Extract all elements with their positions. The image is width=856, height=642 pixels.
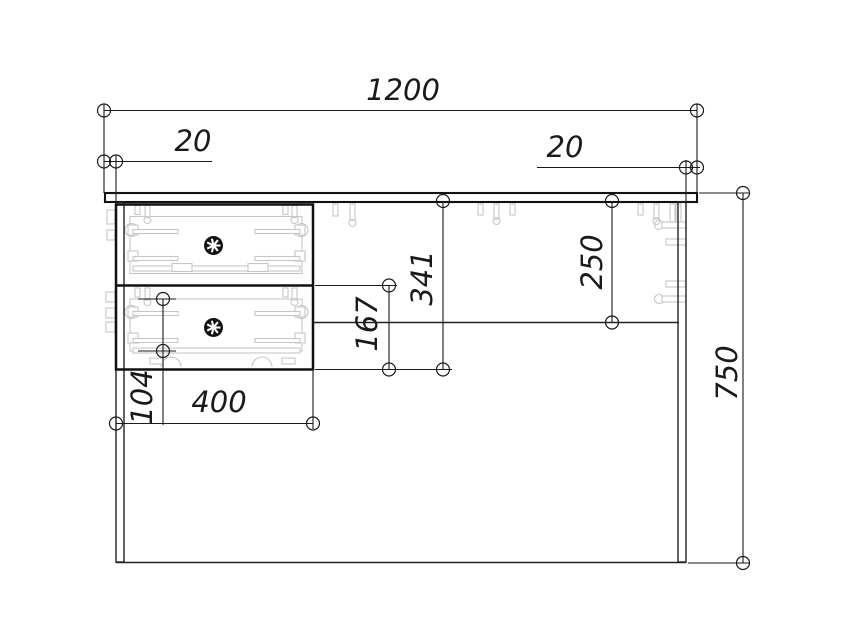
lower-drawer-knob	[204, 318, 223, 337]
technical-drawing-svg: 1200 20 20 750	[0, 0, 856, 642]
dim-total-height: 750	[688, 187, 750, 570]
drawing-canvas: 1200 20 20 750	[0, 0, 856, 642]
desktop	[105, 193, 697, 202]
dim-label-750: 750	[710, 345, 744, 400]
dim-label-20-right: 20	[547, 130, 584, 164]
dim-label-167: 167	[350, 296, 384, 352]
dim-back-panel-height: 250	[575, 195, 619, 330]
dim-label-20-left: 20	[175, 124, 212, 158]
right-leg	[678, 202, 686, 562]
dim-label-104: 104	[125, 369, 159, 424]
dim-label-400: 400	[191, 385, 246, 419]
dowel-pins-center	[478, 204, 515, 225]
dim-label-250: 250	[575, 234, 609, 289]
dowel-pins-mid	[333, 204, 356, 227]
dimensions: 1200 20 20 750	[98, 73, 751, 570]
dim-label-1200: 1200	[366, 73, 440, 107]
dim-label-341: 341	[405, 250, 439, 305]
dim-lower-drawer-height: 167	[315, 279, 397, 376]
upper-drawer-knob	[204, 236, 223, 255]
